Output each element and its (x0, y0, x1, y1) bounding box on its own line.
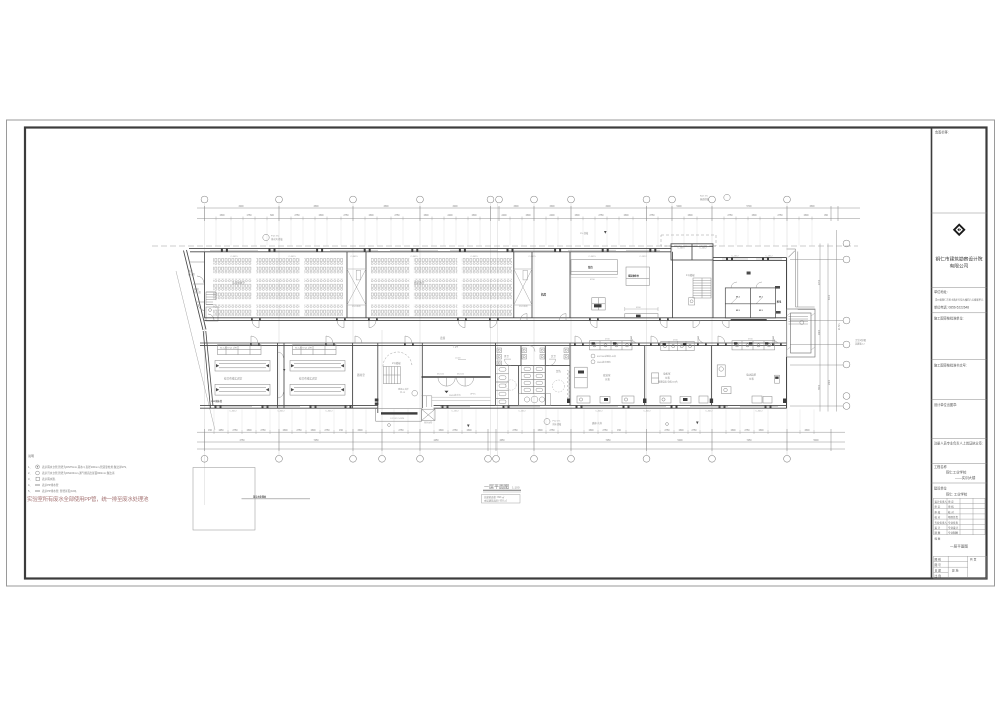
svg-text:图 号: 图 号 (935, 563, 942, 567)
svg-text:2400: 2400 (549, 215, 555, 217)
svg-text:器材室: 器材室 (357, 373, 365, 377)
svg-text:钳台: 钳台 (588, 265, 593, 269)
svg-text:走廊: 走廊 (440, 336, 446, 340)
svg-text:审 定: 审 定 (948, 500, 954, 504)
svg-text:1500: 1500 (537, 430, 543, 432)
svg-text:1500: 1500 (318, 215, 324, 217)
svg-text:2750: 2750 (744, 430, 750, 432)
svg-text:150: 150 (208, 430, 213, 432)
svg-text:3400: 3400 (238, 206, 244, 208)
svg-text:600: 600 (270, 215, 275, 217)
svg-text:3300: 3300 (513, 206, 519, 208)
svg-text:1500: 1500 (623, 215, 629, 217)
svg-text:Na 1-20ml №1 试剂: Na 1-20ml №1 试剂 (220, 346, 237, 350)
svg-text:4750: 4750 (239, 440, 245, 442)
svg-text:表示PP排水管, 管径详见(100),: 表示PP排水管, 管径详见(100), (42, 489, 77, 493)
svg-text:2400: 2400 (829, 379, 831, 385)
svg-text:铜仁市建筑勘察设计院: 铜仁市建筑勘察设计院 (936, 256, 983, 263)
svg-text:1650: 1650 (218, 430, 224, 432)
svg-text:4300: 4300 (636, 307, 641, 309)
svg-text:仪表: 仪表 (605, 377, 611, 381)
svg-text:物理实验 电机100台: 物理实验 电机100台 (658, 380, 678, 384)
svg-text:1号楼梯: 1号楼梯 (686, 273, 695, 277)
svg-text:3600: 3600 (819, 384, 821, 390)
svg-text:多媒体教室: 多媒体教室 (232, 281, 245, 285)
svg-text:K02 1%: K02 1% (700, 196, 708, 198)
svg-text:21.5m: 21.5m (839, 324, 841, 330)
svg-text:2750: 2750 (343, 215, 349, 217)
svg-text:描 图: 描 图 (935, 537, 941, 541)
svg-text:室外台阶: 室外台阶 (424, 421, 432, 425)
svg-text:——实训大楼: ——实训大楼 (955, 475, 976, 480)
svg-text:电动装配: 电动装配 (746, 373, 757, 377)
svg-text:Na 1-20ml №1 试剂: Na 1-20ml №1 试剂 (295, 346, 312, 350)
svg-text:表示雨水立管,管径为DN75mm,雨水斗直径100mm,管道: 表示雨水立管,管径为DN75mm,雨水斗直径100mm,管道靠柱角,做法详97S… (42, 465, 127, 469)
svg-text:2400: 2400 (447, 215, 453, 217)
svg-text:2750: 2750 (452, 430, 458, 432)
svg-text:组装维修台: 组装维修台 (628, 274, 640, 278)
svg-text:设计负责人: 设计负责人 (935, 500, 948, 504)
svg-text:办公区: 办公区 (194, 290, 202, 294)
svg-text:2700: 2700 (673, 339, 678, 341)
svg-text:2750: 2750 (398, 430, 404, 432)
svg-text:门厅: 门厅 (453, 345, 459, 349)
svg-text:一层平面图: 一层平面图 (484, 485, 509, 491)
svg-text:2750: 2750 (598, 215, 604, 217)
svg-text:1500: 1500 (219, 215, 225, 217)
svg-text:建施1大样: 建施1大样 (592, 421, 603, 425)
svg-text:2750: 2750 (777, 215, 783, 217)
svg-text:P12 1%: P12 1% (271, 236, 279, 238)
svg-text:C-3012: C-3012 (229, 411, 237, 413)
svg-text:微机教室: 微机教室 (414, 281, 425, 285)
svg-text:2750: 2750 (296, 430, 302, 432)
svg-text:2、: 2、 (28, 471, 32, 475)
svg-text:1500: 1500 (282, 430, 288, 432)
svg-text:1-2F排水管: 1-2F排水管 (211, 399, 223, 403)
svg-text:专业负责人: 专业负责人 (935, 520, 948, 524)
svg-text:C-3012: C-3012 (705, 411, 713, 413)
svg-text:2750: 2750 (324, 430, 330, 432)
svg-text:C-3015: C-3015 (230, 256, 238, 258)
svg-text:C-1512: C-1512 (518, 411, 526, 413)
svg-text:1500: 1500 (758, 430, 764, 432)
svg-text:见建施-12: 见建施-12 (855, 342, 866, 346)
svg-text:校 对: 校 对 (948, 510, 954, 514)
svg-text:2750: 2750 (727, 215, 733, 217)
svg-text:5700: 5700 (748, 339, 753, 341)
svg-text:盥洗: 盥洗 (556, 369, 561, 373)
svg-text:1500: 1500 (687, 215, 693, 217)
svg-text:4500: 4500 (804, 430, 810, 432)
svg-text:PVC吊顶: PVC吊顶 (519, 304, 527, 308)
svg-text:±0.00: ±0.00 (455, 358, 461, 360)
svg-text:C-1512 C-0924: C-1512 C-0924 (390, 418, 405, 420)
svg-text:表示雨水篦,: 表示雨水篦, (42, 477, 56, 481)
svg-text:审 定: 审 定 (935, 505, 941, 509)
svg-text:600*900试验台 40台: 600*900试验台 40台 (597, 354, 616, 358)
svg-text:项目负责: 项目负责 (948, 515, 959, 519)
svg-text:实验室所有废水全部使用PP管，统一排至废水处理池: 实验室所有废水全部使用PP管，统一排至废水处理池 (27, 495, 149, 503)
svg-text:男卫: 男卫 (504, 354, 509, 358)
svg-text:P12 1%: P12 1% (553, 421, 561, 423)
svg-text:1500: 1500 (471, 215, 477, 217)
svg-text:5400: 5400 (677, 440, 683, 442)
svg-text:女卫: 女卫 (551, 354, 556, 358)
svg-text:4、: 4、 (28, 483, 32, 487)
svg-text:总建筑面积: 993 ㎡: 总建筑面积: 993 ㎡ (484, 495, 505, 499)
svg-text:C-3015: C-3015 (588, 256, 596, 258)
svg-text:C-1015: C-1015 (677, 248, 685, 250)
svg-text:2750: 2750 (664, 430, 670, 432)
svg-text:C-1512: C-1512 (731, 255, 739, 257)
svg-text:施工图审核批准书文号:: 施工图审核批准书文号: (934, 363, 967, 368)
svg-text:综合布线实训室: 综合布线实训室 (224, 377, 243, 381)
svg-text:4700: 4700 (590, 279, 595, 281)
svg-text:2750: 2750 (394, 215, 400, 217)
svg-text:表示PP排水管: 表示PP排水管 (42, 483, 59, 487)
svg-text:1500: 1500 (310, 430, 316, 432)
svg-text:7450: 7450 (313, 440, 319, 442)
svg-text:5700: 5700 (746, 206, 752, 208)
svg-text:铜仁 工业学校: 铜仁 工业学校 (946, 492, 968, 497)
svg-text:仪表: 仪表 (665, 376, 671, 380)
svg-text:C-3015: C-3015 (470, 256, 478, 258)
svg-text:150: 150 (617, 430, 622, 432)
svg-text:贵州省铜仁市民主路步行街大楼四六五级联单元: 贵州省铜仁市民主路步行街大楼四六五级联单元 (935, 298, 984, 302)
svg-text:单位电话: 0856-5222648: 单位电话: 0856-5222648 (934, 305, 969, 310)
svg-text:2750: 2750 (549, 430, 555, 432)
svg-text:1750: 1750 (246, 215, 252, 217)
svg-text:C-3012: C-3012 (325, 411, 333, 413)
svg-text:1500: 1500 (525, 215, 531, 217)
svg-text:7450: 7450 (746, 440, 752, 442)
svg-text:制 图: 制 图 (935, 531, 941, 535)
svg-text:4650: 4650 (499, 440, 505, 442)
svg-text:5、: 5、 (28, 489, 32, 493)
svg-text:建施01大样: 建施01大样 (398, 387, 409, 391)
svg-text:工程名称: 工程名称 (934, 464, 948, 469)
svg-text:2750: 2750 (649, 215, 655, 217)
svg-text:4500: 4500 (383, 206, 389, 208)
svg-text:C-1512: C-1512 (639, 256, 647, 258)
svg-text:建设单位: 建设单位 (934, 486, 948, 491)
svg-text:校 对: 校 对 (935, 515, 941, 519)
svg-text:机房: 机房 (540, 293, 547, 297)
svg-text:4450: 4450 (433, 440, 439, 442)
svg-text:施工图审核批准单位:: 施工图审核批准单位: (934, 316, 964, 321)
svg-text:2750: 2750 (602, 430, 608, 432)
svg-text:共 页: 共 页 (970, 557, 977, 561)
svg-text:1500: 1500 (466, 430, 472, 432)
svg-text:2750: 2750 (512, 430, 518, 432)
svg-text:M-1521: M-1521 (457, 374, 465, 376)
svg-text:本层建筑面积: 993 ㎡: 本层建筑面积: 993 ㎡ (484, 499, 507, 503)
svg-text:3400: 3400 (452, 206, 458, 208)
svg-text:4500: 4500 (809, 206, 815, 208)
svg-text:C-1012: C-1012 (699, 248, 707, 250)
svg-text:450: 450 (824, 215, 829, 217)
svg-text:卫生间详图: 卫生间详图 (855, 338, 866, 342)
svg-text:图 别: 图 别 (935, 557, 942, 561)
svg-text:专业制图: 专业制图 (948, 531, 959, 535)
svg-text:1500: 1500 (438, 430, 444, 432)
svg-text:6000: 6000 (829, 294, 831, 300)
svg-text:UPVC: UPVC (470, 394, 476, 396)
svg-text:3300: 3300 (549, 206, 555, 208)
svg-text:单位地址:: 单位地址: (934, 289, 948, 294)
svg-text:配电: 配电 (777, 299, 782, 303)
svg-text:DN50排水明沟: DN50排水明沟 (597, 360, 611, 364)
svg-text:C-3012: C-3012 (755, 411, 763, 413)
svg-text:审 核: 审 核 (935, 510, 941, 514)
svg-text:专业负责: 专业负责 (948, 520, 959, 524)
svg-text:2700: 2700 (819, 279, 821, 285)
svg-text:2% 找坡: 2% 找坡 (580, 231, 589, 235)
svg-text:会签栏等:: 会签栏等: (935, 130, 949, 135)
svg-text:专业设计: 专业设计 (948, 526, 959, 530)
svg-text:铜仁工业学校: 铜仁工业学校 (946, 470, 967, 475)
svg-text:1500: 1500 (574, 215, 580, 217)
svg-text:C-3015: C-3015 (350, 256, 358, 258)
svg-text:C-1512: C-1512 (765, 255, 773, 257)
svg-text:综合布线实训室: 综合布线实训室 (299, 377, 318, 381)
svg-text:办公区: 办公区 (188, 272, 196, 276)
svg-text:审 核: 审 核 (948, 505, 954, 509)
svg-text:M-1: M-1 (759, 310, 764, 312)
svg-text:1500: 1500 (588, 430, 594, 432)
svg-text:电机室: 电机室 (663, 372, 671, 376)
svg-text:M-1: M-1 (759, 296, 764, 298)
svg-text:1500: 1500 (678, 430, 684, 432)
svg-text:比 例: 比 例 (935, 574, 942, 578)
svg-text:3、: 3、 (28, 477, 32, 481)
svg-text:C-3012: C-3012 (277, 411, 285, 413)
svg-text:3300: 3300 (357, 430, 363, 432)
svg-text:1500: 1500 (423, 215, 429, 217)
svg-text:有限公司: 有限公司 (950, 263, 969, 270)
svg-text:PVC吊顶: PVC吊顶 (352, 304, 360, 308)
svg-text:日 期: 日 期 (935, 568, 942, 572)
svg-text:设 计: 设 计 (935, 526, 941, 530)
svg-text:C-1512: C-1512 (451, 411, 459, 413)
svg-text:2700: 2700 (605, 339, 610, 341)
svg-text:2400: 2400 (501, 215, 507, 217)
svg-text:说明: 说明 (28, 453, 34, 458)
svg-text:设计单位出图章:: 设计单位出图章: (934, 402, 957, 407)
svg-text:1:100: 1:100 (512, 486, 520, 490)
svg-text:一层平面图: 一层平面图 (950, 544, 968, 549)
svg-text:2750: 2750 (294, 215, 300, 217)
svg-text:仪表: 仪表 (749, 377, 755, 381)
svg-text:4500: 4500 (313, 206, 319, 208)
svg-text:M-1: M-1 (736, 296, 741, 298)
svg-text:150: 150 (339, 430, 344, 432)
svg-text:1500: 1500 (751, 215, 757, 217)
svg-text:1500: 1500 (803, 215, 809, 217)
svg-text:M-1: M-1 (736, 310, 741, 312)
svg-text:C-3015: C-3015 (410, 256, 418, 258)
svg-text:2750: 2750 (691, 430, 697, 432)
svg-text:C-3012: C-3012 (643, 411, 651, 413)
svg-text:2号楼梯: 2号楼梯 (392, 361, 401, 365)
svg-text:M-1521: M-1521 (437, 374, 445, 376)
svg-text:改装室: 改装室 (603, 373, 611, 377)
svg-text:1、: 1、 (28, 465, 32, 469)
svg-text:注册人员专业负责人上岗证执业章:: 注册人员专业负责人上岗证执业章: (934, 441, 983, 446)
svg-text:2400: 2400 (819, 329, 821, 335)
svg-text:DN50排水沟: DN50排水沟 (449, 393, 461, 397)
svg-text:表示污水立管,管径为DN100mm,通气帽高出屋面600mm: 表示污水立管,管径为DN100mm,通气帽高出屋面600mm,做法详, (42, 471, 115, 475)
svg-text:7450: 7450 (605, 440, 611, 442)
svg-text:C-3015: C-3015 (288, 256, 296, 258)
svg-text:2750: 2750 (232, 430, 238, 432)
svg-text:1500: 1500 (246, 430, 252, 432)
svg-text:2750: 2750 (260, 430, 266, 432)
svg-text:3400: 3400 (605, 206, 611, 208)
svg-text:5400: 5400 (676, 206, 682, 208)
svg-text:C-3012: C-3012 (595, 411, 603, 413)
svg-text:1500: 1500 (368, 215, 374, 217)
svg-text:5000: 5000 (813, 440, 819, 442)
svg-text:1500: 1500 (730, 430, 736, 432)
svg-text:建 施: 建 施 (952, 568, 959, 572)
